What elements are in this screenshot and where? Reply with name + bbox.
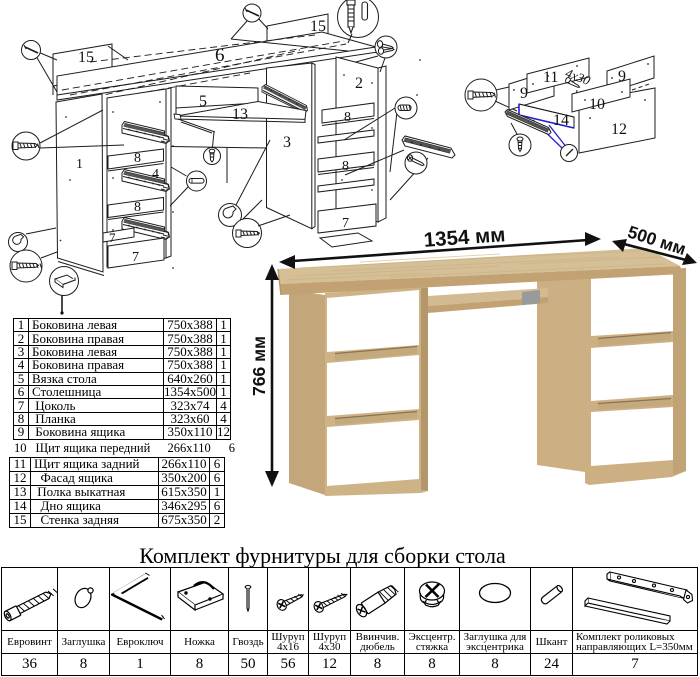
svg-text:7: 7 — [132, 250, 139, 265]
svg-text:7: 7 — [109, 230, 116, 245]
svg-text:12: 12 — [611, 121, 627, 138]
svg-text:3: 3 — [283, 134, 291, 151]
svg-text:4: 4 — [152, 167, 159, 182]
svg-text:10: 10 — [589, 96, 605, 113]
svg-text:14: 14 — [553, 112, 569, 129]
svg-text:15: 15 — [78, 49, 94, 66]
svg-text:13: 13 — [232, 106, 248, 123]
svg-text:1: 1 — [76, 157, 83, 172]
svg-text:7: 7 — [342, 216, 349, 231]
svg-text:8: 8 — [134, 151, 141, 166]
svg-text:766 мм: 766 мм — [249, 336, 269, 396]
svg-text:11: 11 — [543, 69, 558, 86]
svg-text:8: 8 — [342, 159, 349, 174]
svg-text:8: 8 — [344, 110, 351, 125]
svg-text:2: 2 — [355, 75, 363, 92]
svg-text:5: 5 — [199, 93, 207, 110]
svg-text:8: 8 — [134, 200, 141, 215]
